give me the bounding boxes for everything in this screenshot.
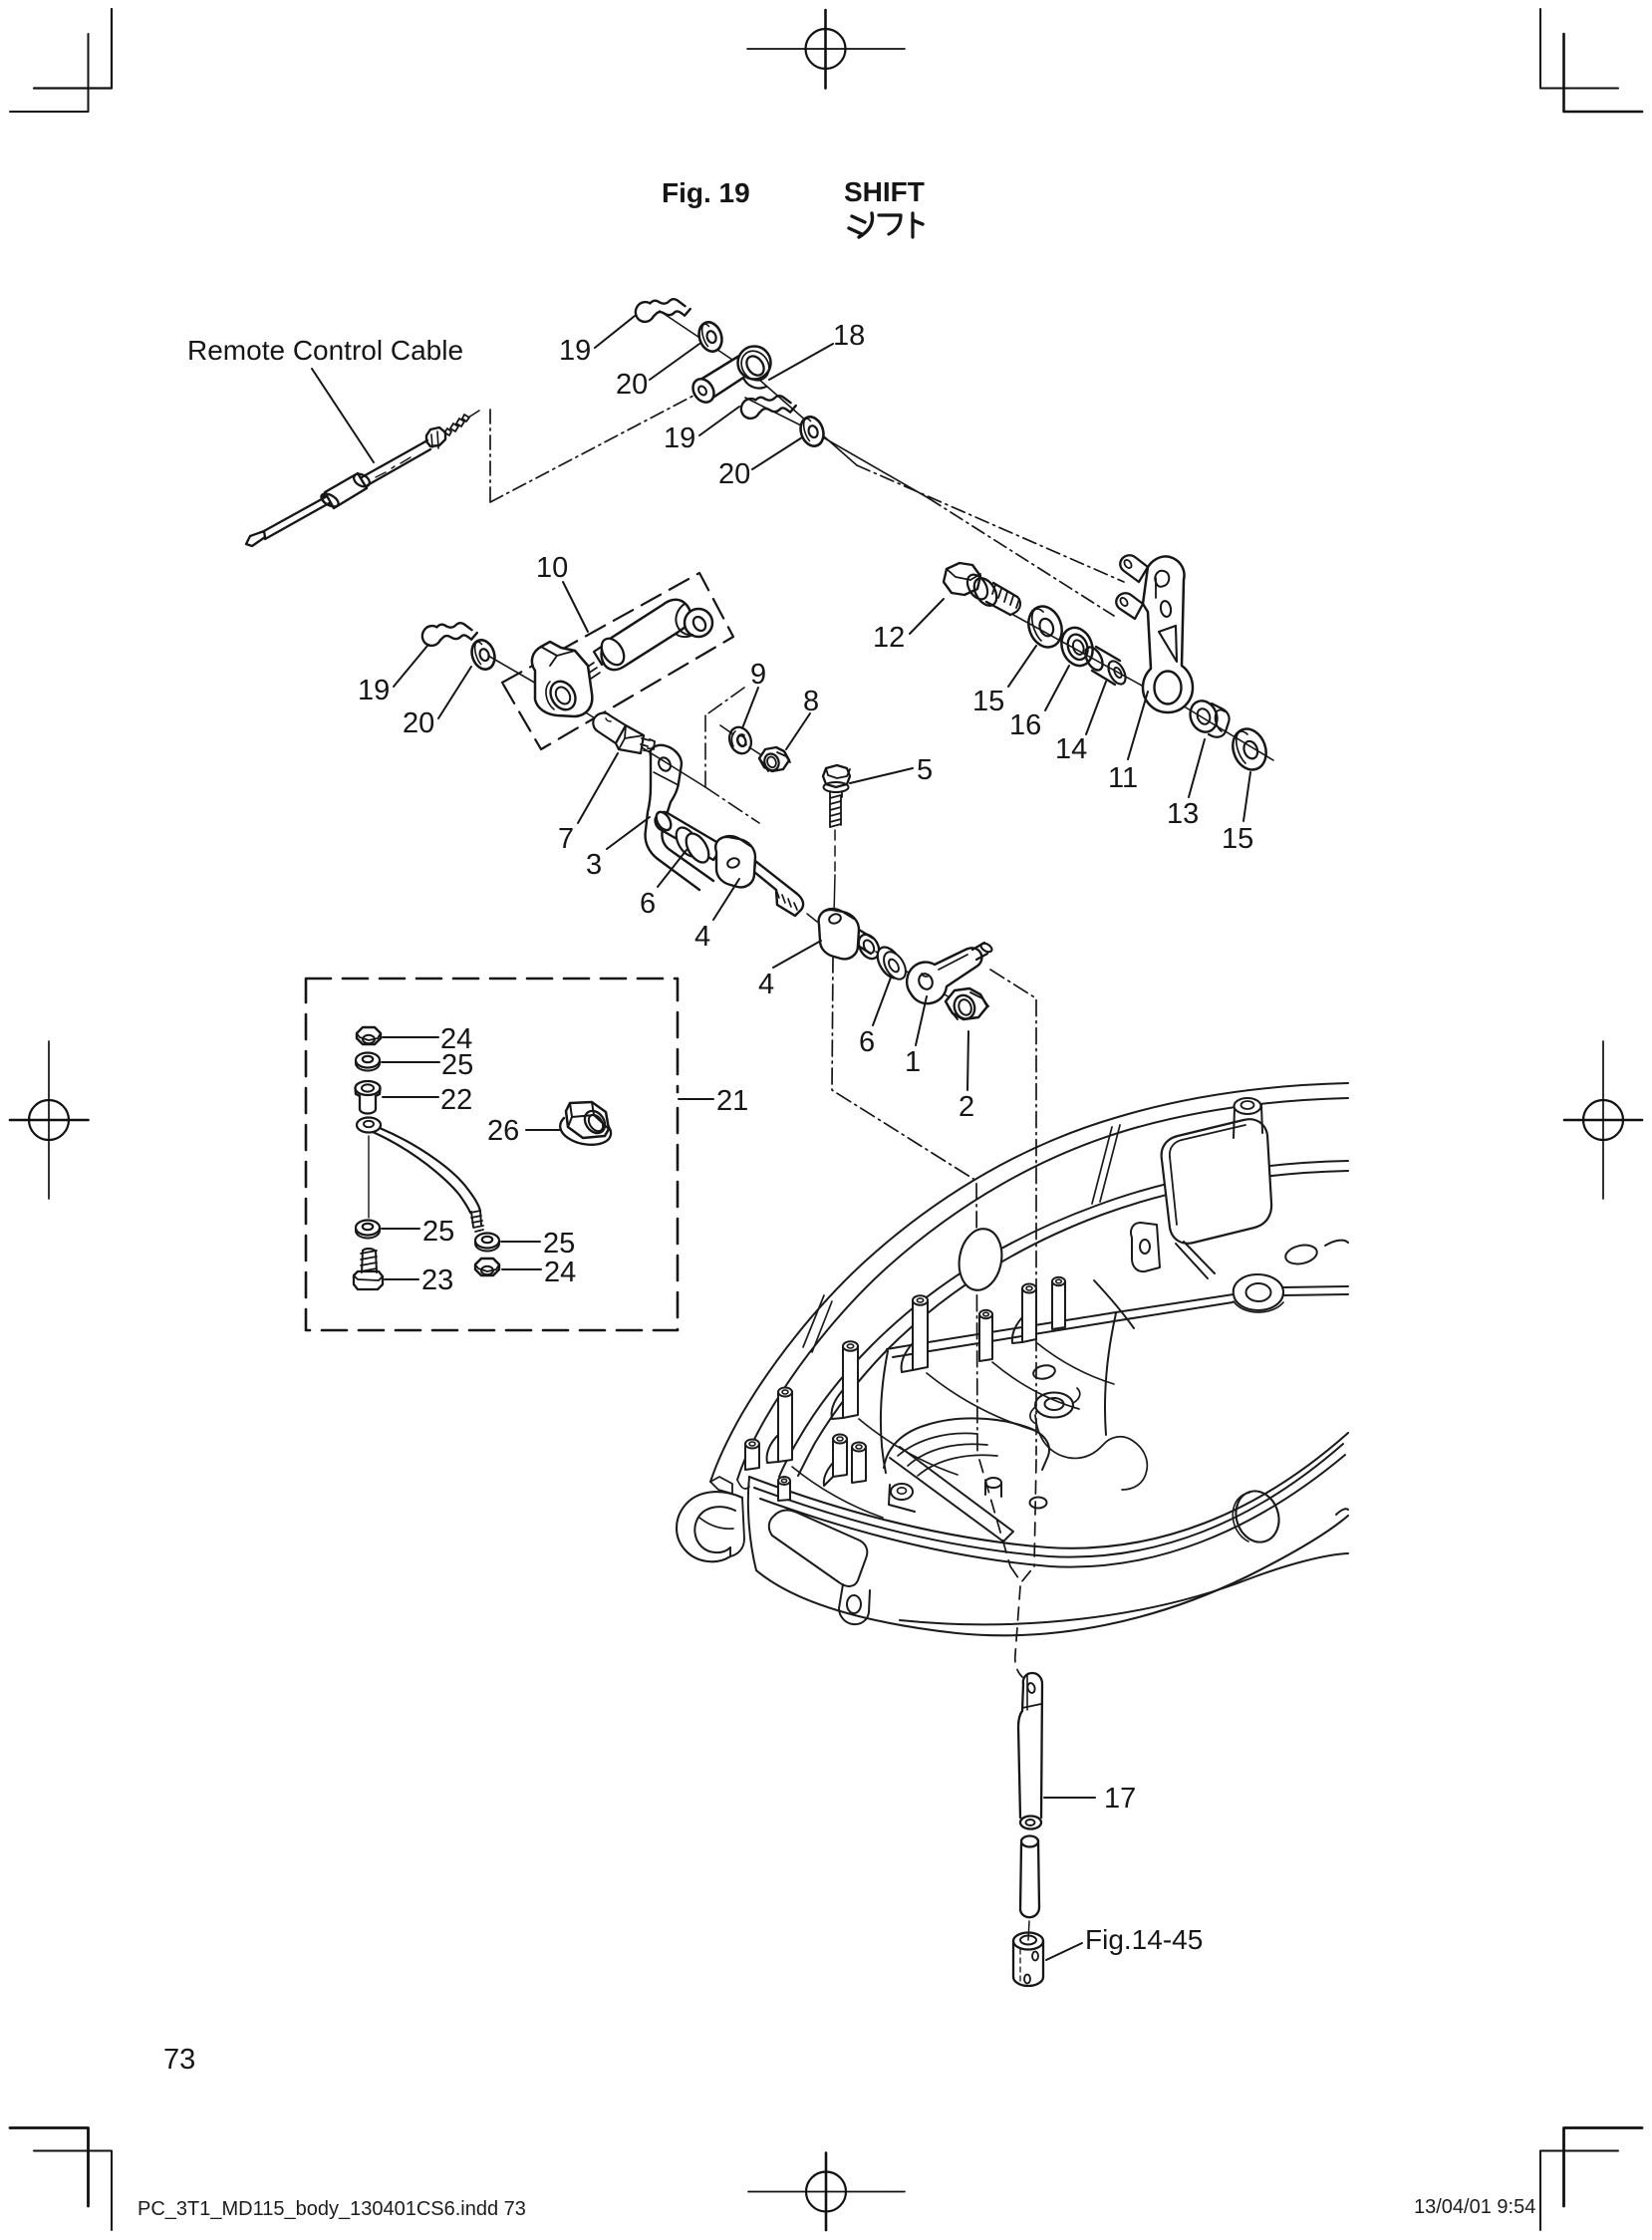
svg-text:PC_3T1_MD115_body_130401CS6.in: PC_3T1_MD115_body_130401CS6.indd 73 xyxy=(138,2198,526,2220)
svg-text:13/04/01 9:54: 13/04/01 9:54 xyxy=(1414,2196,1535,2218)
svg-text:Fig.14-45: Fig.14-45 xyxy=(1085,1924,1203,1955)
svg-text:25: 25 xyxy=(543,1228,575,1260)
svg-text:20: 20 xyxy=(718,458,750,490)
svg-text:25: 25 xyxy=(441,1049,473,1081)
svg-text:15: 15 xyxy=(972,686,1004,717)
svg-text:20: 20 xyxy=(616,369,648,401)
svg-text:21: 21 xyxy=(716,1085,748,1117)
svg-text:6: 6 xyxy=(640,888,656,920)
svg-text:19: 19 xyxy=(559,335,591,367)
svg-text:24: 24 xyxy=(544,1257,576,1288)
svg-text:22: 22 xyxy=(440,1084,472,1116)
svg-text:SHIFT: SHIFT xyxy=(844,176,925,207)
svg-text:73: 73 xyxy=(163,2044,195,2076)
svg-text:18: 18 xyxy=(833,320,865,352)
svg-text:Fig. 19: Fig. 19 xyxy=(662,177,750,208)
svg-text:12: 12 xyxy=(873,622,905,654)
svg-text:23: 23 xyxy=(421,1264,453,1296)
svg-text:13: 13 xyxy=(1167,798,1199,830)
svg-text:2: 2 xyxy=(959,1091,974,1123)
svg-text:19: 19 xyxy=(358,675,390,706)
svg-text:17: 17 xyxy=(1104,1783,1136,1815)
svg-text:5: 5 xyxy=(917,754,933,786)
svg-text:6: 6 xyxy=(859,1026,875,1058)
svg-text:3: 3 xyxy=(586,849,602,881)
svg-text:9: 9 xyxy=(750,659,766,691)
svg-text:11: 11 xyxy=(1108,762,1138,794)
svg-text:20: 20 xyxy=(403,707,434,739)
svg-text:4: 4 xyxy=(758,969,774,1000)
svg-text:25: 25 xyxy=(422,1216,454,1248)
svg-text:26: 26 xyxy=(487,1115,519,1147)
svg-text:16: 16 xyxy=(1009,709,1041,741)
svg-text:14: 14 xyxy=(1055,733,1087,765)
svg-text:7: 7 xyxy=(558,823,574,855)
svg-text:19: 19 xyxy=(664,422,695,454)
svg-text:15: 15 xyxy=(1222,823,1253,855)
svg-text:Remote Control Cable: Remote Control Cable xyxy=(187,335,463,366)
svg-text:10: 10 xyxy=(536,552,568,584)
svg-text:4: 4 xyxy=(694,921,710,953)
svg-text:1: 1 xyxy=(905,1046,921,1078)
svg-text:8: 8 xyxy=(803,686,819,717)
